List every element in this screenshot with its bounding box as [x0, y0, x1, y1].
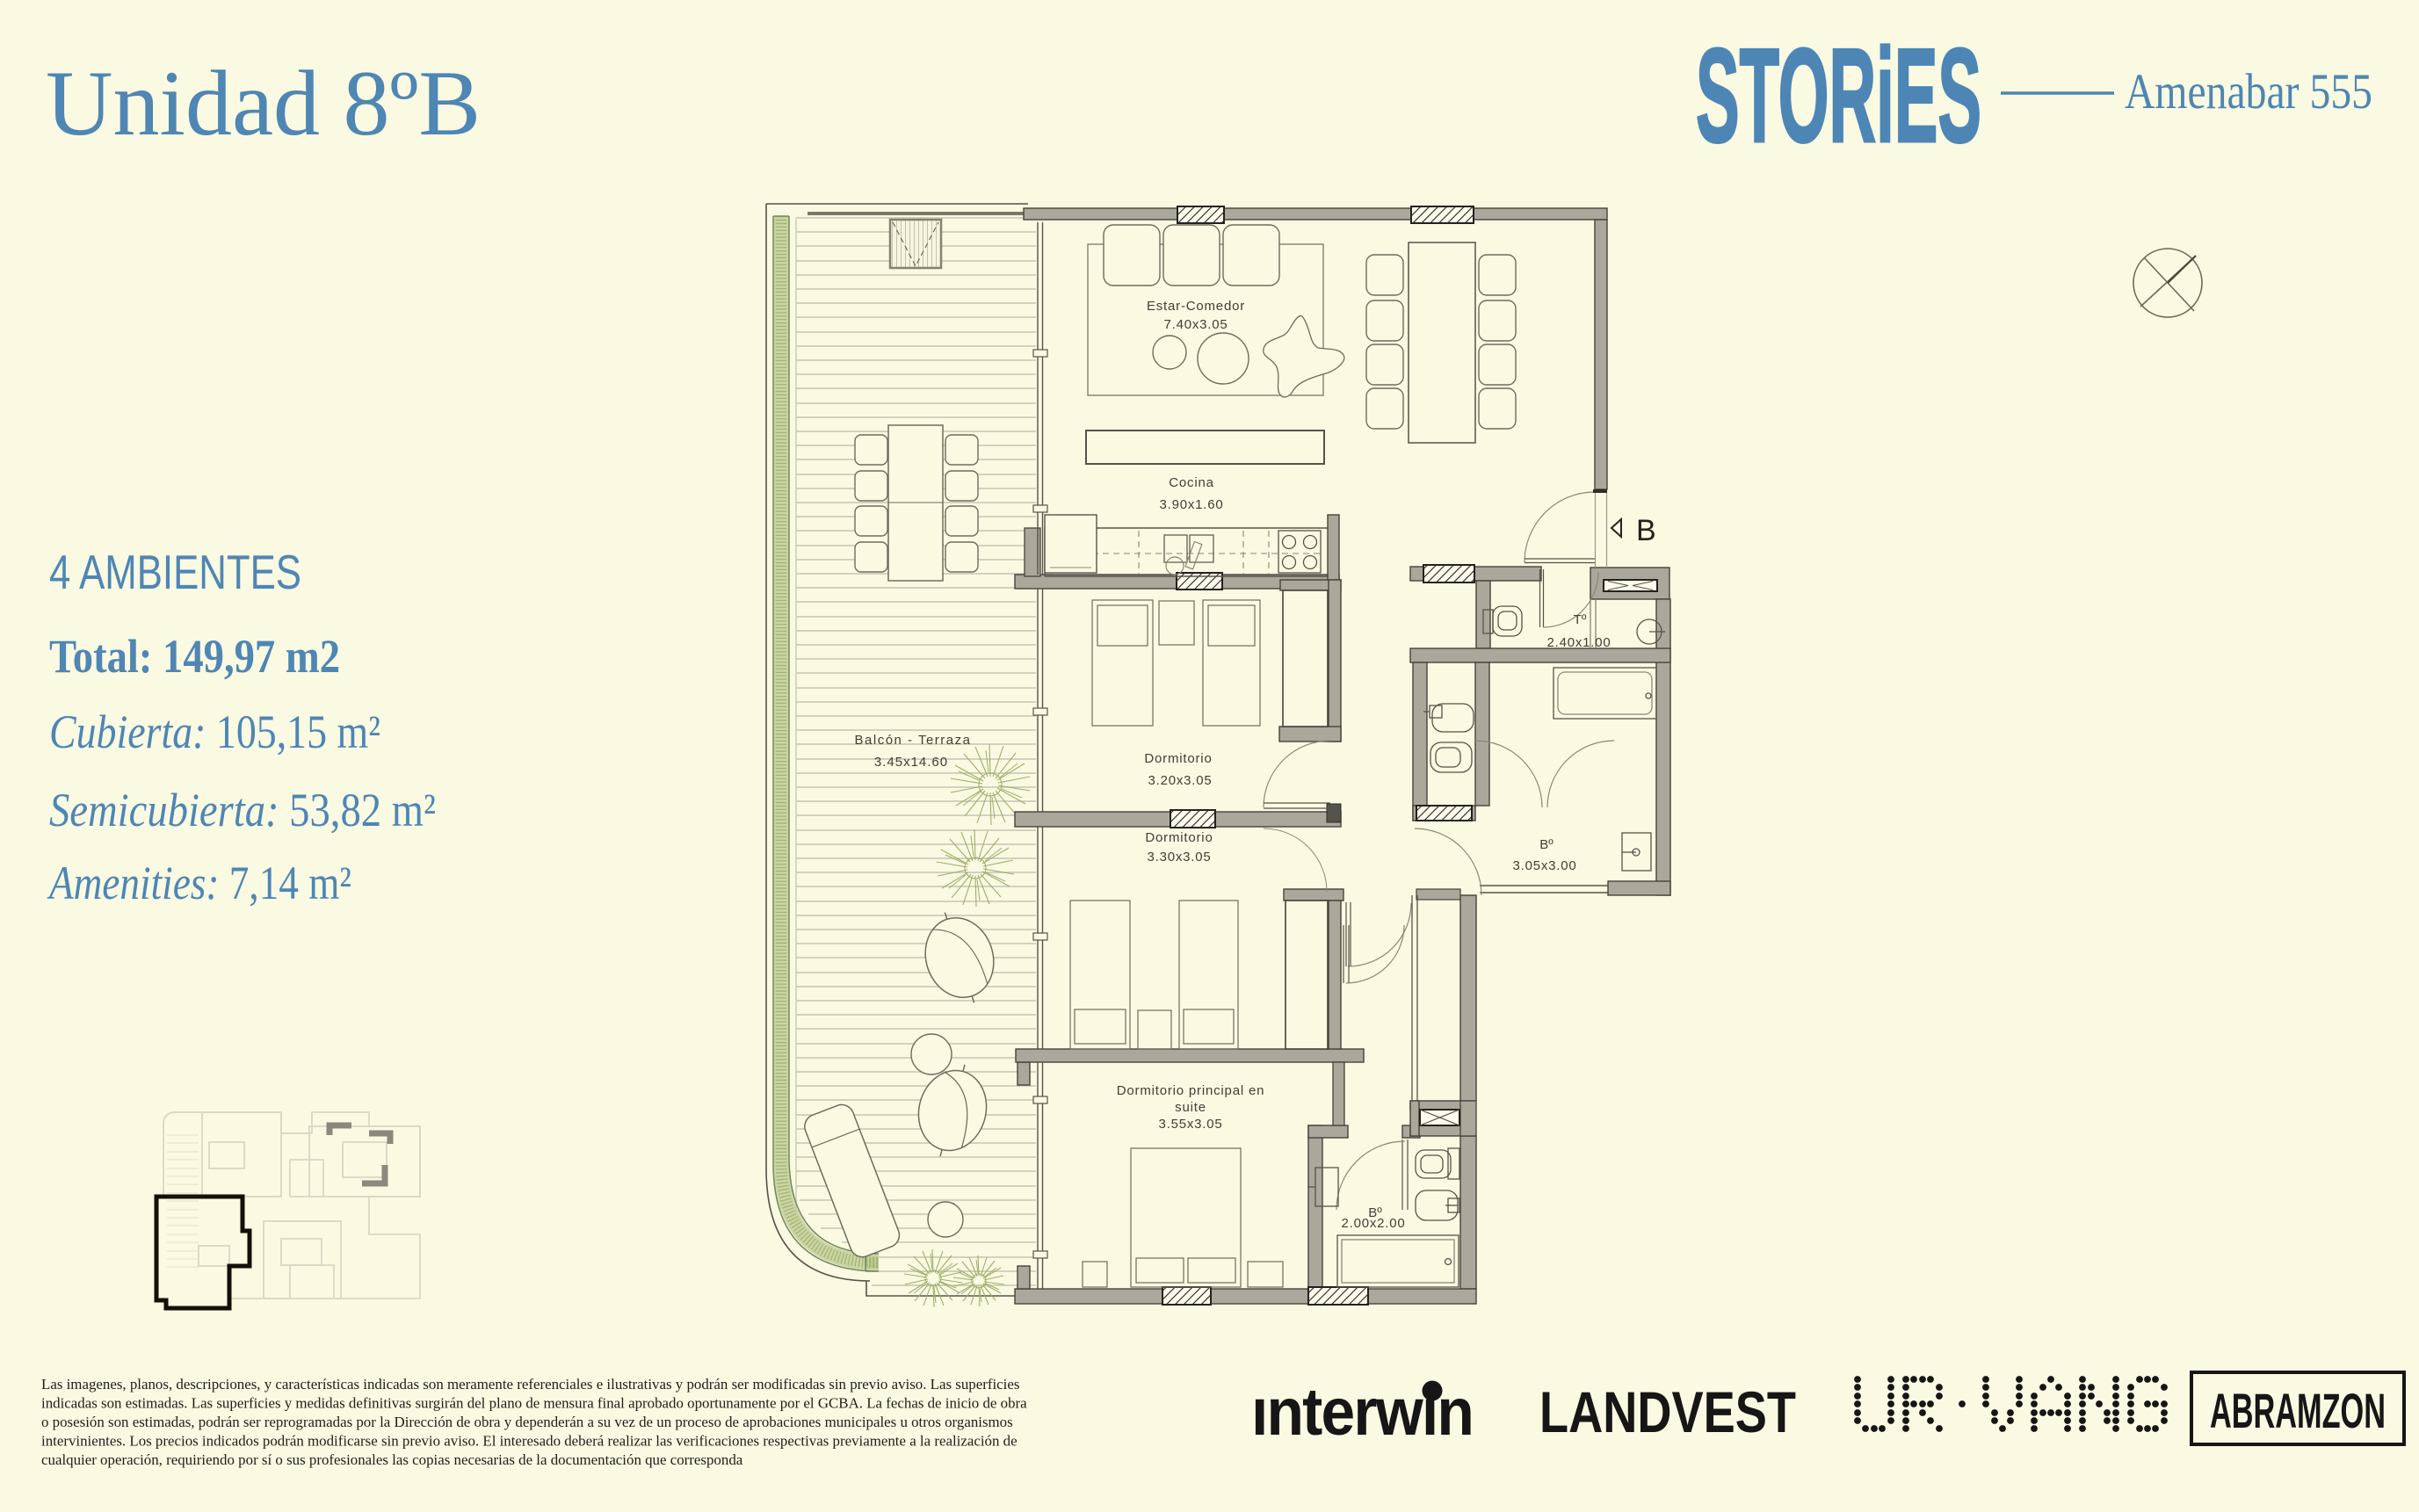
svg-text:4 AMBIENTES: 4 AMBIENTES — [49, 545, 301, 599]
svg-text:3.05x3.00: 3.05x3.00 — [1512, 858, 1576, 873]
svg-text:indicadas son estimadas. Las s: indicadas son estimadas. Las superficies… — [41, 1395, 1027, 1412]
svg-text:Amenabar 555: Amenabar 555 — [2125, 64, 2372, 119]
svg-text:suite: suite — [1175, 1100, 1206, 1115]
svg-text:ABRAMZON: ABRAMZON — [2210, 1383, 2386, 1438]
svg-text:B: B — [1636, 514, 1656, 547]
svg-text:Bº: Bº — [1539, 837, 1554, 852]
svg-text:3.55x3.05: 3.55x3.05 — [1158, 1117, 1222, 1132]
svg-text:Unidad 8ºB: Unidad 8ºB — [46, 52, 481, 155]
svg-text:LANDVEST: LANDVEST — [1539, 1379, 1796, 1444]
svg-text:Dormitorio principal en: Dormitorio principal en — [1117, 1083, 1264, 1098]
svg-text:2.40x1.00: 2.40x1.00 — [1546, 635, 1611, 650]
svg-text:Dormitorio: Dormitorio — [1145, 830, 1213, 845]
svg-text:Cubierta: 105,15 m²: Cubierta: 105,15 m² — [49, 705, 380, 758]
svg-text:Semicubierta: 53,82 m²: Semicubierta: 53,82 m² — [49, 784, 436, 836]
svg-text:3.30x3.05: 3.30x3.05 — [1147, 850, 1211, 865]
svg-text:Dormitorio: Dormitorio — [1144, 751, 1212, 766]
svg-text:cualquier operación, requirien: cualquier operación, requiriendo por sí … — [41, 1451, 743, 1468]
svg-text:Tº: Tº — [1574, 612, 1587, 627]
svg-text:7.40x3.05: 7.40x3.05 — [1163, 317, 1228, 332]
svg-text:3.20x3.05: 3.20x3.05 — [1148, 773, 1212, 788]
svg-text:Balcón - Terraza: Balcón - Terraza — [855, 733, 972, 748]
svg-text:o posesión son estimadas, pod: o posesión son estimadas, podrán ser rep… — [41, 1414, 1013, 1430]
svg-text:Cocina: Cocina — [1169, 475, 1214, 490]
svg-text:Las imagenes, planos, descripc: Las imagenes, planos, descripciones, y c… — [41, 1376, 1019, 1393]
svg-text:intervinientes. Los precios in: intervinientes. Los precios indicados po… — [41, 1433, 1018, 1450]
svg-text:Total: 149,97 m2: Total: 149,97 m2 — [49, 630, 340, 683]
svg-text:3.90x1.60: 3.90x1.60 — [1159, 497, 1223, 512]
svg-text:2.00x2.00: 2.00x2.00 — [1341, 1216, 1405, 1231]
svg-text:3.45x14.60: 3.45x14.60 — [874, 755, 948, 770]
svg-text:Amenities: 7,14 m²: Amenities: 7,14 m² — [47, 857, 351, 909]
svg-text:Estar-Comedor: Estar-Comedor — [1147, 299, 1245, 314]
svg-text:STORiES: STORiES — [1696, 21, 1981, 170]
